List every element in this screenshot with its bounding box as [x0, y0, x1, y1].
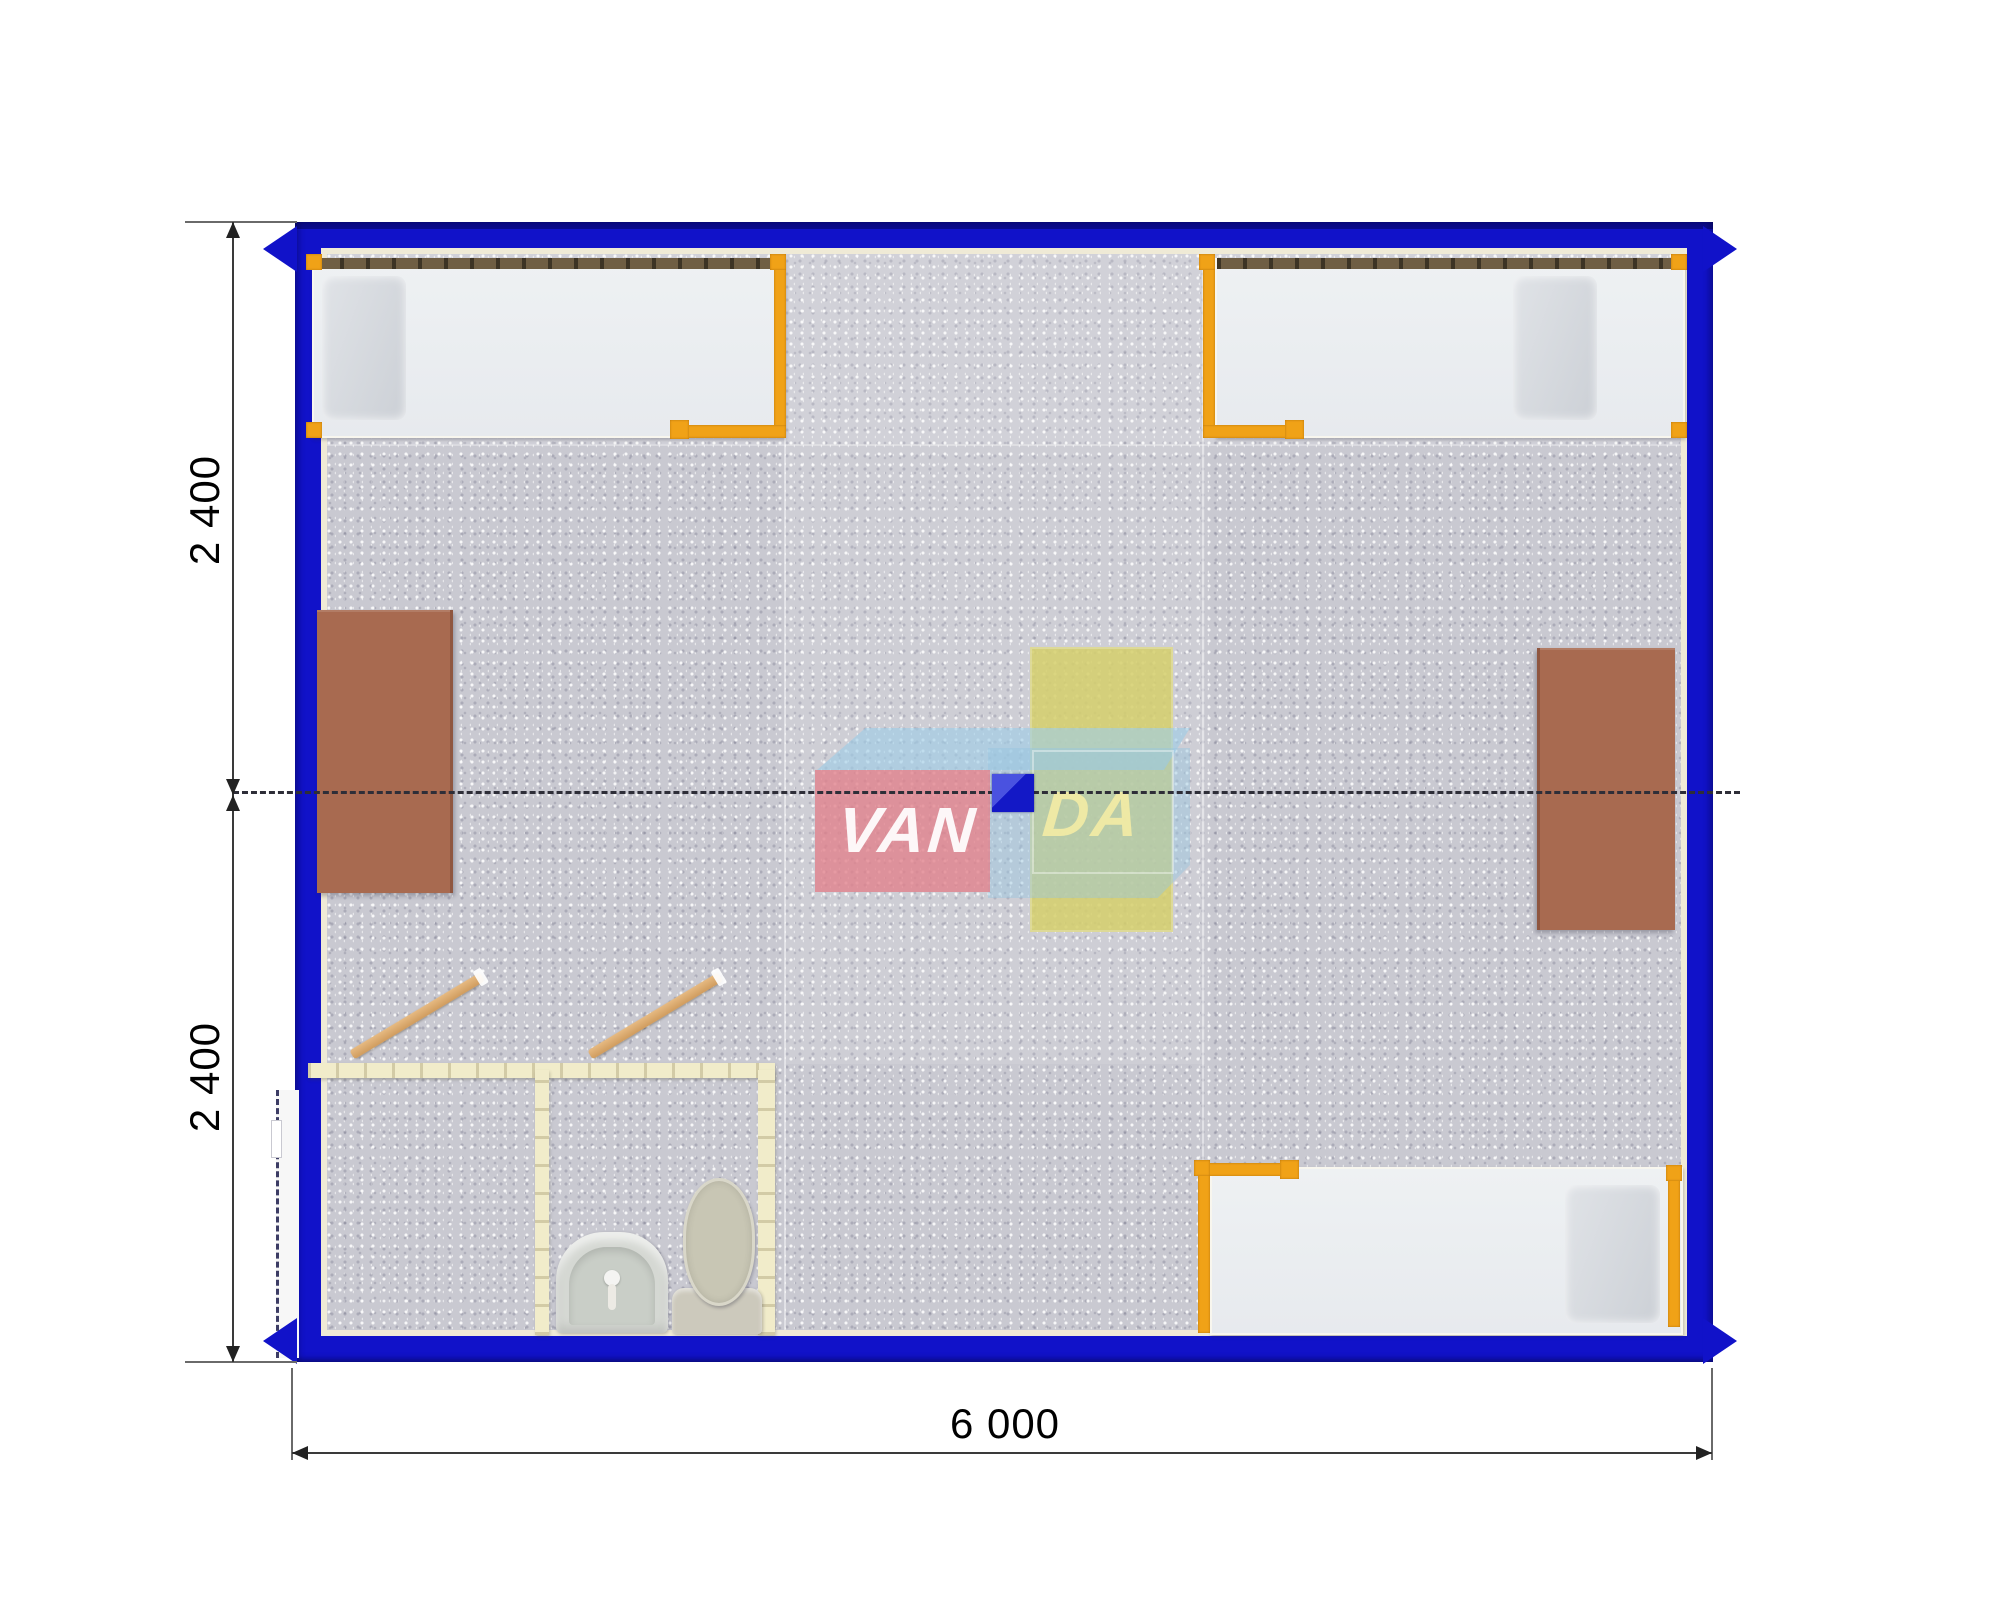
bed-corner-post: [306, 254, 322, 270]
dimension-line-bottom: [292, 1452, 1712, 1454]
bed-mattress: [1215, 258, 1685, 438]
bed-corner-post: [670, 420, 689, 439]
bed-corner-post: [1280, 1160, 1299, 1179]
bed-corner-post: [1666, 1165, 1682, 1181]
bed-headboard-rail: [1217, 258, 1681, 269]
floor-plan-canvas: VAN DA 2 400 2 400 6 000: [0, 0, 2000, 1622]
watermark-text-van: VAN: [835, 798, 980, 862]
corner-casting-bottom-right: [1703, 1318, 1737, 1364]
corner-casting-top-left: [263, 226, 297, 272]
bed-top-right: [1203, 256, 1683, 438]
dimension-label-left-bottom: 2 400: [184, 997, 226, 1157]
bed-corner-post: [1194, 1160, 1210, 1176]
bed-frame-rail-left: [1203, 260, 1215, 436]
dimension-arrow: [226, 222, 240, 238]
dimension-label-left-top: 2 400: [184, 430, 226, 590]
bed-corner-post: [1671, 422, 1687, 438]
center-axis-dashed-line: [233, 791, 1740, 794]
center-marker: [992, 774, 1034, 812]
extension-line-top-left: [185, 221, 297, 223]
desk-right: [1537, 648, 1675, 930]
toilet-lid: [683, 1178, 755, 1306]
bed-corner-post: [770, 254, 786, 270]
dimension-label-bottom: 6 000: [920, 1400, 1090, 1444]
bed-corner-post: [306, 422, 322, 438]
bed-bottom-right: [1196, 1163, 1683, 1333]
corner-casting-top-right: [1703, 226, 1737, 272]
bed-corner-post: [1285, 420, 1304, 439]
bed-frame-rail-left: [1198, 1165, 1210, 1333]
dimension-arrow: [292, 1446, 308, 1460]
floor-joint-horizontal: [327, 444, 1681, 446]
faucet-stem: [608, 1284, 616, 1310]
bed-frame-rail-foot: [1203, 425, 1295, 438]
bed-frame-rail-right: [1668, 1179, 1680, 1327]
bed-frame-rail-head: [1198, 1163, 1290, 1176]
bed-pillow: [1565, 1185, 1660, 1323]
bed-top-left: [312, 256, 785, 438]
dimension-arrow: [226, 1346, 240, 1362]
bed-corner-post: [1671, 254, 1687, 270]
dimension-arrow: [226, 779, 240, 795]
bed-frame-rail-right: [774, 260, 786, 436]
desk-left: [317, 610, 453, 893]
sink: [556, 1232, 668, 1333]
extension-line-bottom-left: [185, 1361, 297, 1363]
dimension-arrow: [1696, 1446, 1712, 1460]
bed-headboard-rail: [314, 258, 781, 269]
bed-frame-rail-foot: [680, 425, 786, 438]
dimension-arrow: [226, 795, 240, 811]
entrance-door-handle: [271, 1120, 282, 1158]
bed-pillow: [322, 276, 406, 420]
corner-casting-bottom-left: [263, 1318, 297, 1364]
bed-pillow: [1513, 276, 1597, 420]
bed-corner-post: [1199, 254, 1215, 270]
bathroom-wall-divider: [535, 1070, 549, 1335]
